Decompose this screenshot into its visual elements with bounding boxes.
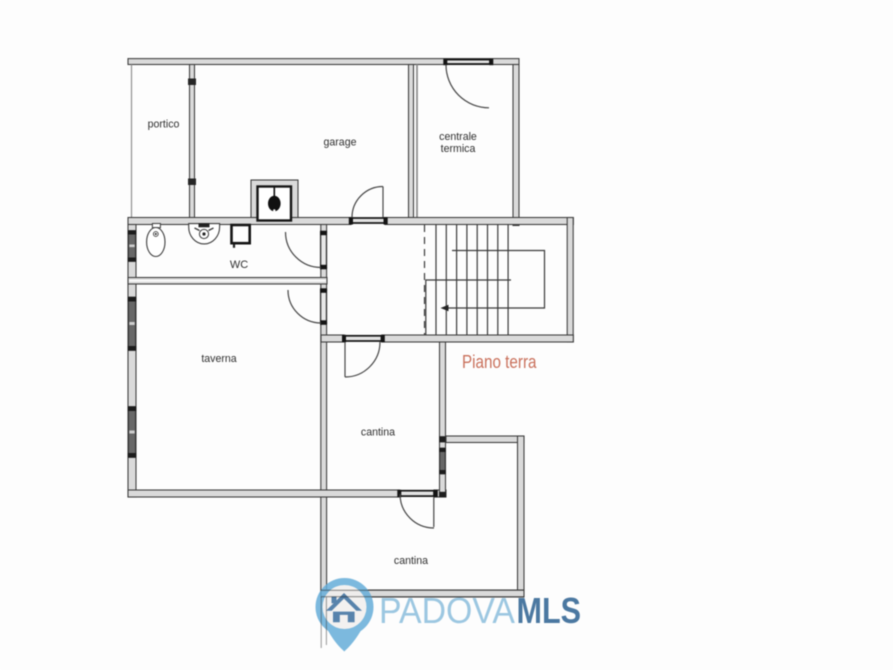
svg-text:centrale: centrale xyxy=(439,131,477,143)
svg-text:cantina: cantina xyxy=(394,555,428,567)
svg-text:MLS: MLS xyxy=(517,590,582,631)
svg-text:portico: portico xyxy=(148,119,180,131)
svg-text:termica: termica xyxy=(441,143,476,155)
svg-text:cantina: cantina xyxy=(361,427,395,439)
svg-text:WC: WC xyxy=(230,259,248,271)
svg-text:PADOVA: PADOVA xyxy=(379,590,516,631)
svg-text:garage: garage xyxy=(324,137,357,149)
svg-text:Piano terra: Piano terra xyxy=(462,352,537,372)
svg-text:taverna: taverna xyxy=(201,353,236,365)
